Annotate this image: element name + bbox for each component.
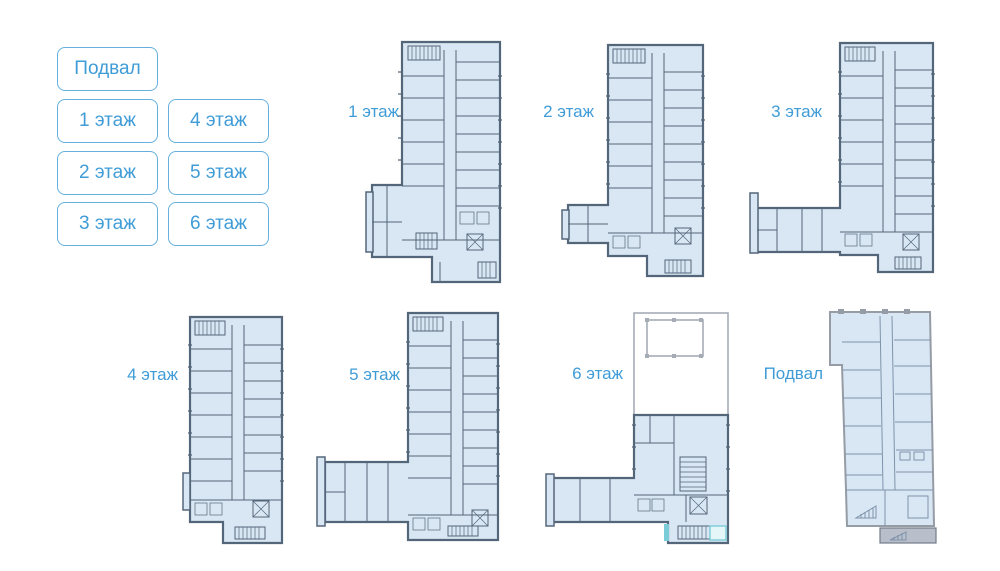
balcony [183, 473, 190, 510]
floor-button-6[interactable]: 6 этаж [168, 202, 269, 246]
floor-button-basement[interactable]: Подвал [57, 47, 158, 91]
floor-plan-2-drawing [555, 28, 710, 283]
floor-button-5[interactable]: 5 этаж [168, 151, 269, 195]
floor-plan-6-preview [540, 305, 735, 550]
floor-button-3[interactable]: 3 этаж [57, 202, 158, 246]
roof-area [634, 313, 728, 415]
floor-plan-2-preview [555, 28, 710, 283]
balcony [546, 474, 554, 526]
balcony [750, 193, 758, 253]
balcony [562, 210, 569, 239]
floor-plans-page: Подвал 1 этаж 4 этаж 2 этаж 5 этаж 3 эта… [0, 0, 1000, 571]
floor-plan-1-preview [360, 22, 510, 287]
floor-plan-4-preview [175, 305, 295, 550]
building-footprint [372, 42, 500, 282]
floor-plan-6-drawing [540, 305, 735, 550]
building-footprint [553, 415, 728, 543]
floor-button-2[interactable]: 2 этаж [57, 151, 158, 195]
floor-plan-3-preview [745, 26, 945, 278]
balcony [317, 457, 325, 526]
floor-plan-5-preview [310, 300, 505, 552]
floor-plan-3-drawing [745, 26, 945, 278]
floor-plan-basement-preview [820, 300, 945, 550]
service-block [880, 528, 936, 543]
floor-button-4[interactable]: 4 этаж [168, 99, 269, 143]
floor-plan-4-drawing [175, 305, 295, 550]
floor-plan-5-drawing [310, 300, 505, 552]
floor-plan-1-drawing [360, 22, 510, 287]
floor-plan-basement-drawing [820, 300, 945, 550]
floor-plan-4-label: 4 этаж [96, 365, 178, 385]
building-footprint [190, 317, 282, 543]
building-footprint [325, 313, 498, 540]
floor-plan-basement-label: Подвал [741, 364, 823, 384]
balcony [366, 192, 373, 252]
floor-button-1[interactable]: 1 этаж [57, 99, 158, 143]
